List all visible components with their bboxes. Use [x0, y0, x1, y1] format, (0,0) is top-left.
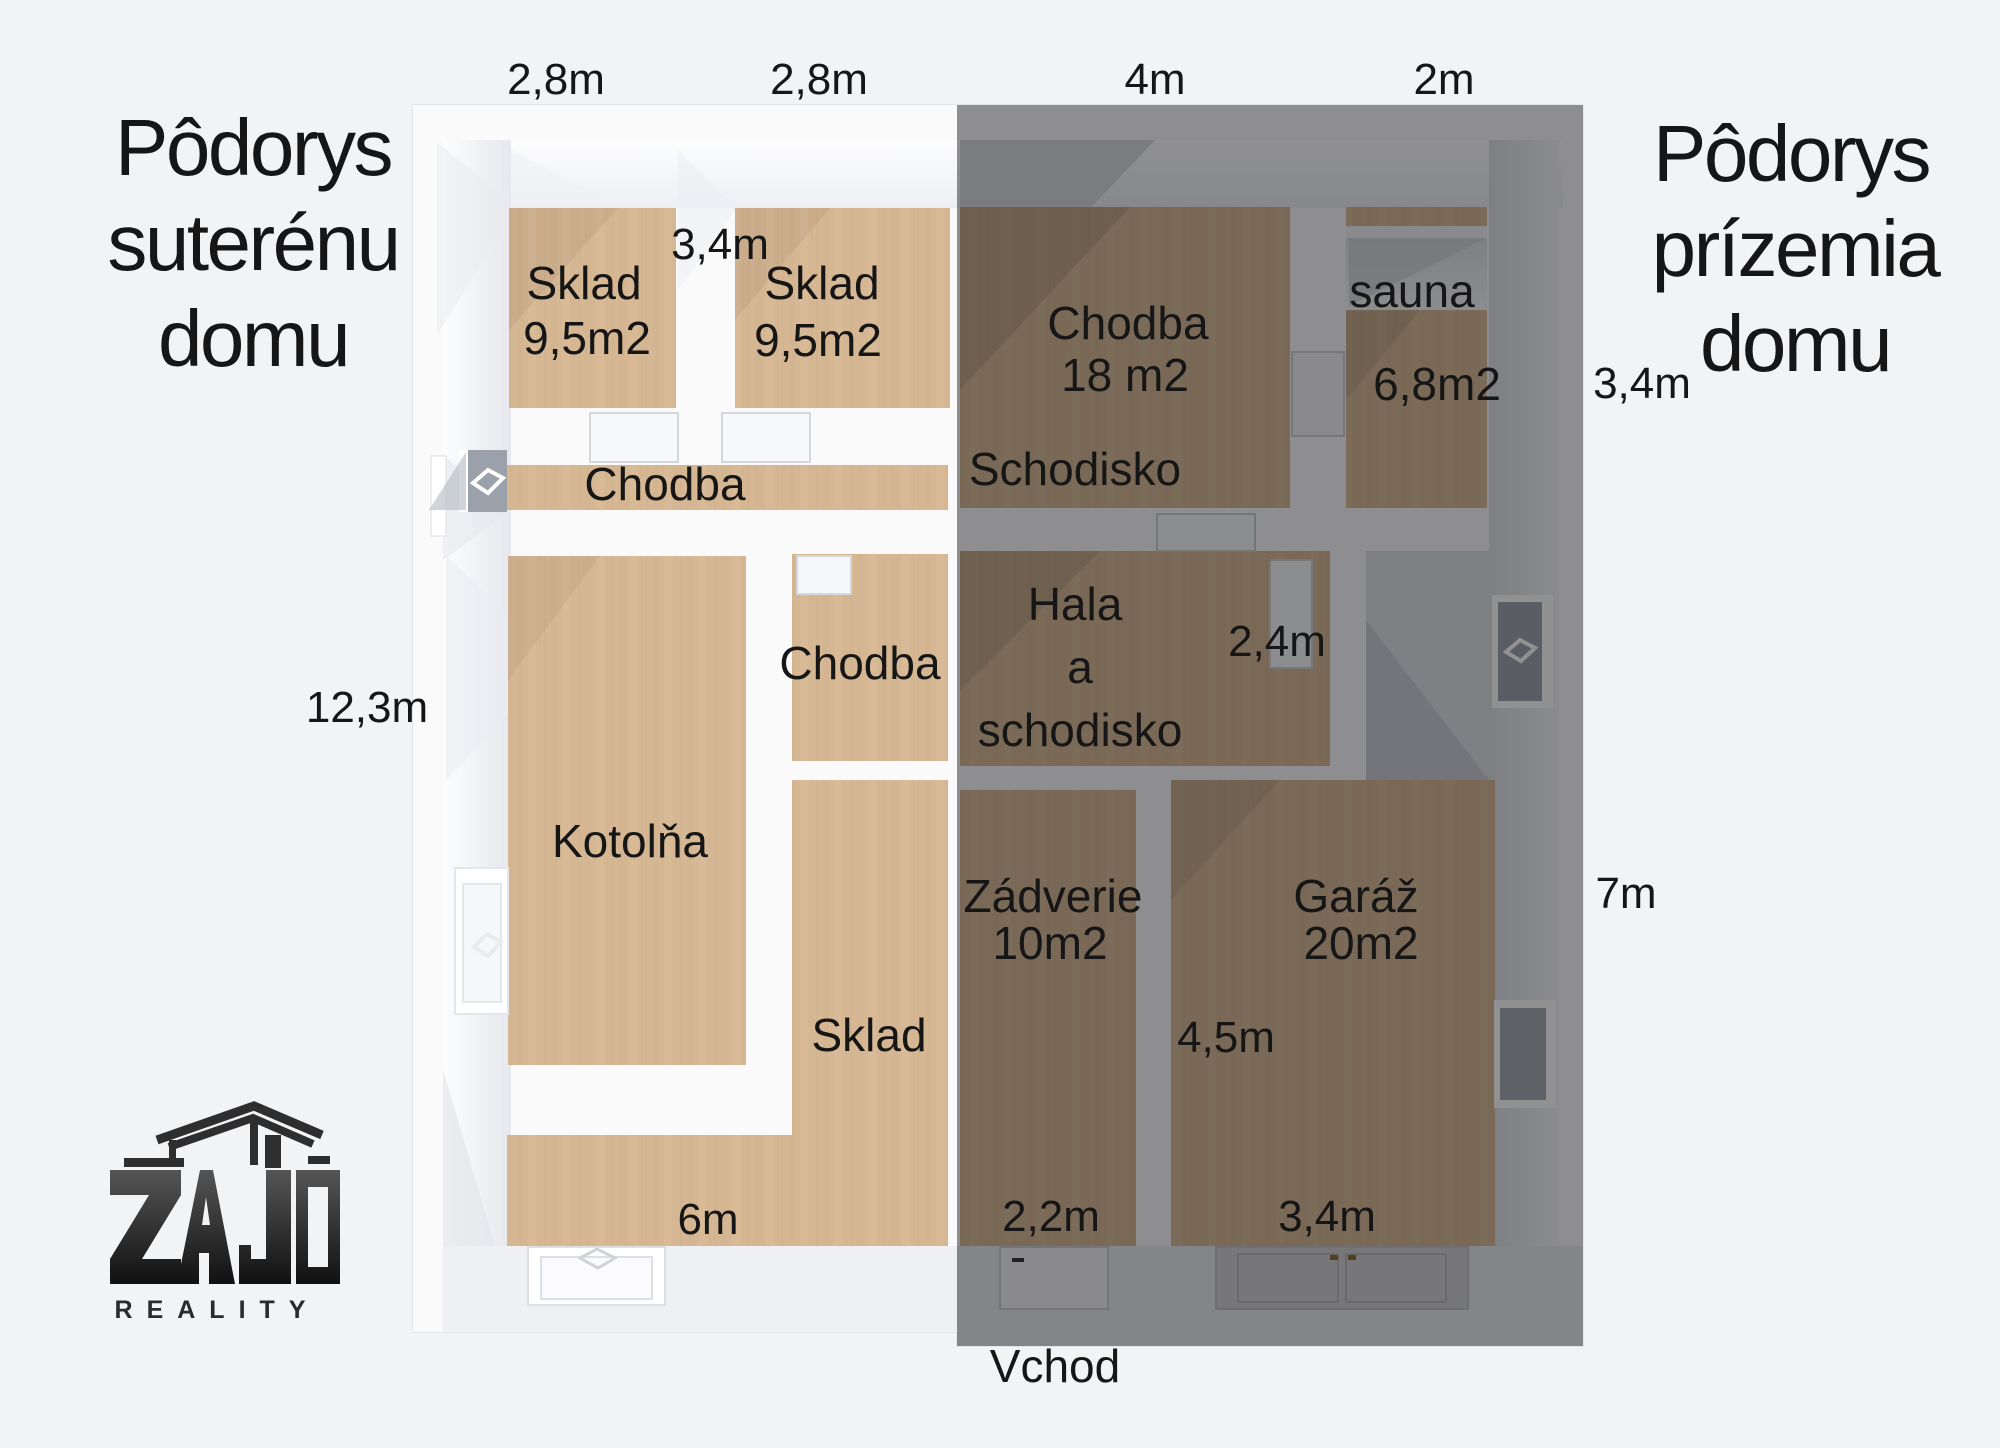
svg-text:Schodisko: Schodisko: [969, 443, 1181, 495]
svg-text:Chodba: Chodba: [779, 637, 941, 689]
svg-text:6,8m2: 6,8m2: [1373, 358, 1501, 410]
svg-text:2,4m: 2,4m: [1228, 617, 1326, 666]
svg-text:Sklad: Sklad: [811, 1009, 926, 1061]
svg-text:Pôdorys: Pôdorys: [115, 103, 391, 192]
svg-text:2,8m: 2,8m: [507, 55, 605, 104]
svg-text:9,5m2: 9,5m2: [754, 314, 882, 366]
svg-text:2m: 2m: [1413, 55, 1474, 104]
svg-text:9,5m2: 9,5m2: [523, 312, 651, 364]
svg-text:3,4m: 3,4m: [671, 220, 769, 269]
svg-text:18 m2: 18 m2: [1061, 349, 1189, 401]
svg-text:Kotolňa: Kotolňa: [552, 815, 708, 867]
svg-text:12,3m: 12,3m: [306, 683, 428, 732]
svg-text:3,4m: 3,4m: [1593, 359, 1691, 408]
svg-text:Vchod: Vchod: [990, 1340, 1120, 1392]
svg-text:sauna: sauna: [1349, 265, 1475, 317]
svg-text:7m: 7m: [1595, 869, 1656, 918]
svg-text:Garáž: Garáž: [1293, 870, 1418, 922]
svg-text:domu: domu: [1700, 299, 1890, 388]
svg-text:6m: 6m: [677, 1195, 738, 1244]
svg-text:20m2: 20m2: [1303, 917, 1418, 969]
svg-text:REALITY: REALITY: [115, 1296, 320, 1324]
svg-text:2,2m: 2,2m: [1002, 1192, 1100, 1241]
svg-text:prízemia: prízemia: [1652, 204, 1942, 293]
svg-text:Sklad: Sklad: [526, 257, 641, 309]
svg-text:Chodba: Chodba: [584, 458, 746, 510]
svg-text:3,4m: 3,4m: [1278, 1192, 1376, 1241]
svg-text:suterénu: suterénu: [107, 198, 398, 287]
svg-text:2,8m: 2,8m: [770, 55, 868, 104]
svg-text:Zádverie: Zádverie: [964, 870, 1143, 922]
svg-text:Chodba: Chodba: [1047, 297, 1209, 349]
svg-text:Hala: Hala: [1028, 578, 1123, 630]
svg-text:Pôdorys: Pôdorys: [1653, 109, 1929, 198]
svg-text:schodisko: schodisko: [978, 704, 1183, 756]
svg-text:a: a: [1067, 641, 1093, 693]
svg-text:domu: domu: [158, 294, 348, 383]
svg-text:10m2: 10m2: [992, 917, 1107, 969]
svg-text:Sklad: Sklad: [764, 257, 879, 309]
svg-text:4m: 4m: [1124, 55, 1185, 104]
svg-text:4,5m: 4,5m: [1177, 1013, 1275, 1062]
